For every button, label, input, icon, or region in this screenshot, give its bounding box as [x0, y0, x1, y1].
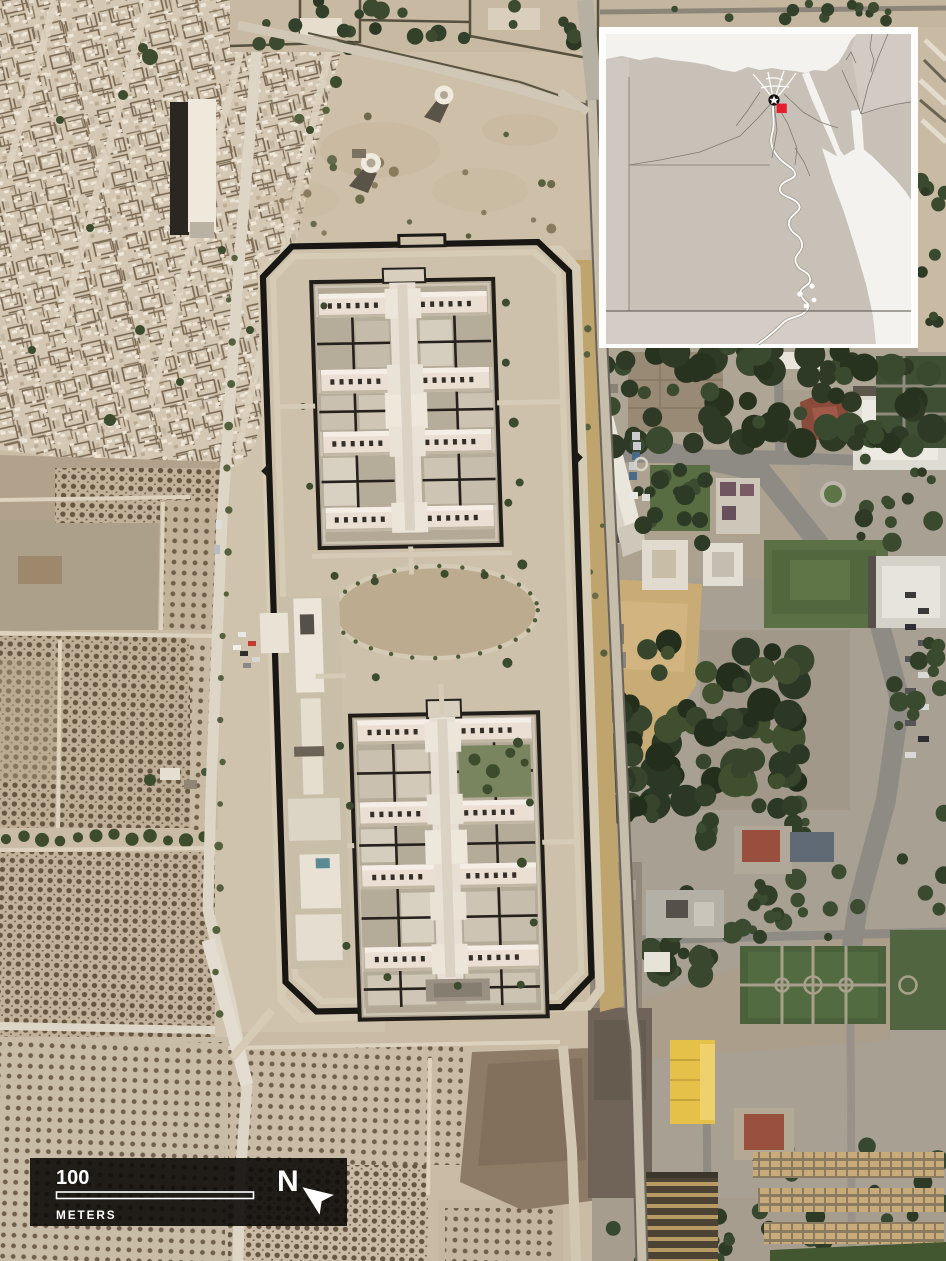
- svg-text:N: N: [277, 1165, 299, 1198]
- svg-text:100: 100: [56, 1167, 89, 1189]
- svg-text:METERS: METERS: [56, 1208, 117, 1222]
